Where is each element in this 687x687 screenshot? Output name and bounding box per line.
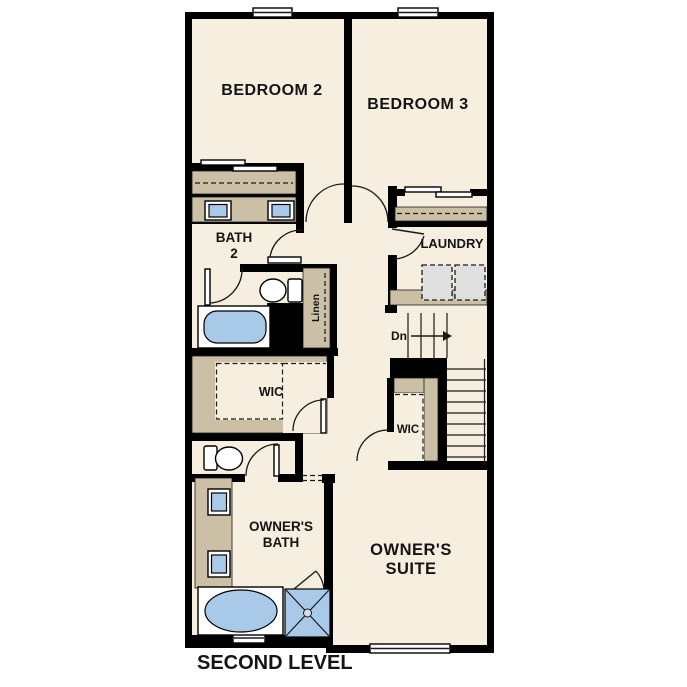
water-closet-door-leaf [274,445,279,476]
floor-plan-drawing: BEDROOM 2 BEDROOM 3 BATH 2 LAUNDRY Linen… [0,0,687,687]
floor-plan-page: BEDROOM 2 BEDROOM 3 BATH 2 LAUNDRY Linen… [0,0,687,687]
laundry-label: LAUNDRY [420,236,483,251]
owners-toilet [204,446,243,470]
wic-main-door-leaf [321,399,326,433]
wic-secondary-label: WIC [397,424,419,436]
stairs-down-label: Dn [391,329,407,343]
dryer [455,265,485,300]
bedroom3-label: BEDROOM 3 [367,96,468,113]
owners-bath-label-line2: BATH [263,535,300,550]
owners-bath-label-line1: OWNER'S [249,519,313,534]
bath2-label-line1: BATH [216,230,253,245]
owners-shower [285,589,330,637]
bath2-toilet [260,279,302,302]
washer [422,265,452,300]
bath2-label-line2: 2 [230,246,238,261]
bath2-wet-area-door-leaf [205,269,210,305]
bedroom2-label: BEDROOM 2 [221,82,322,99]
wic-secondary-shelf-right [424,378,438,461]
owners-suite-window [370,644,450,653]
owners-oval-tub [198,587,283,635]
level-title: SECOND LEVEL [197,652,353,674]
linen-label: Linen [310,294,322,322]
bath2-door-leaf [268,257,301,263]
wic-main-label: WIC [259,385,283,399]
bath2-bathtub [198,303,303,348]
owners-suite-label-line2: SUITE [385,560,436,578]
bedroom2-window [253,8,292,17]
bedroom3-window [398,8,438,17]
owners-suite-label-line1: OWNER'S [370,541,452,559]
